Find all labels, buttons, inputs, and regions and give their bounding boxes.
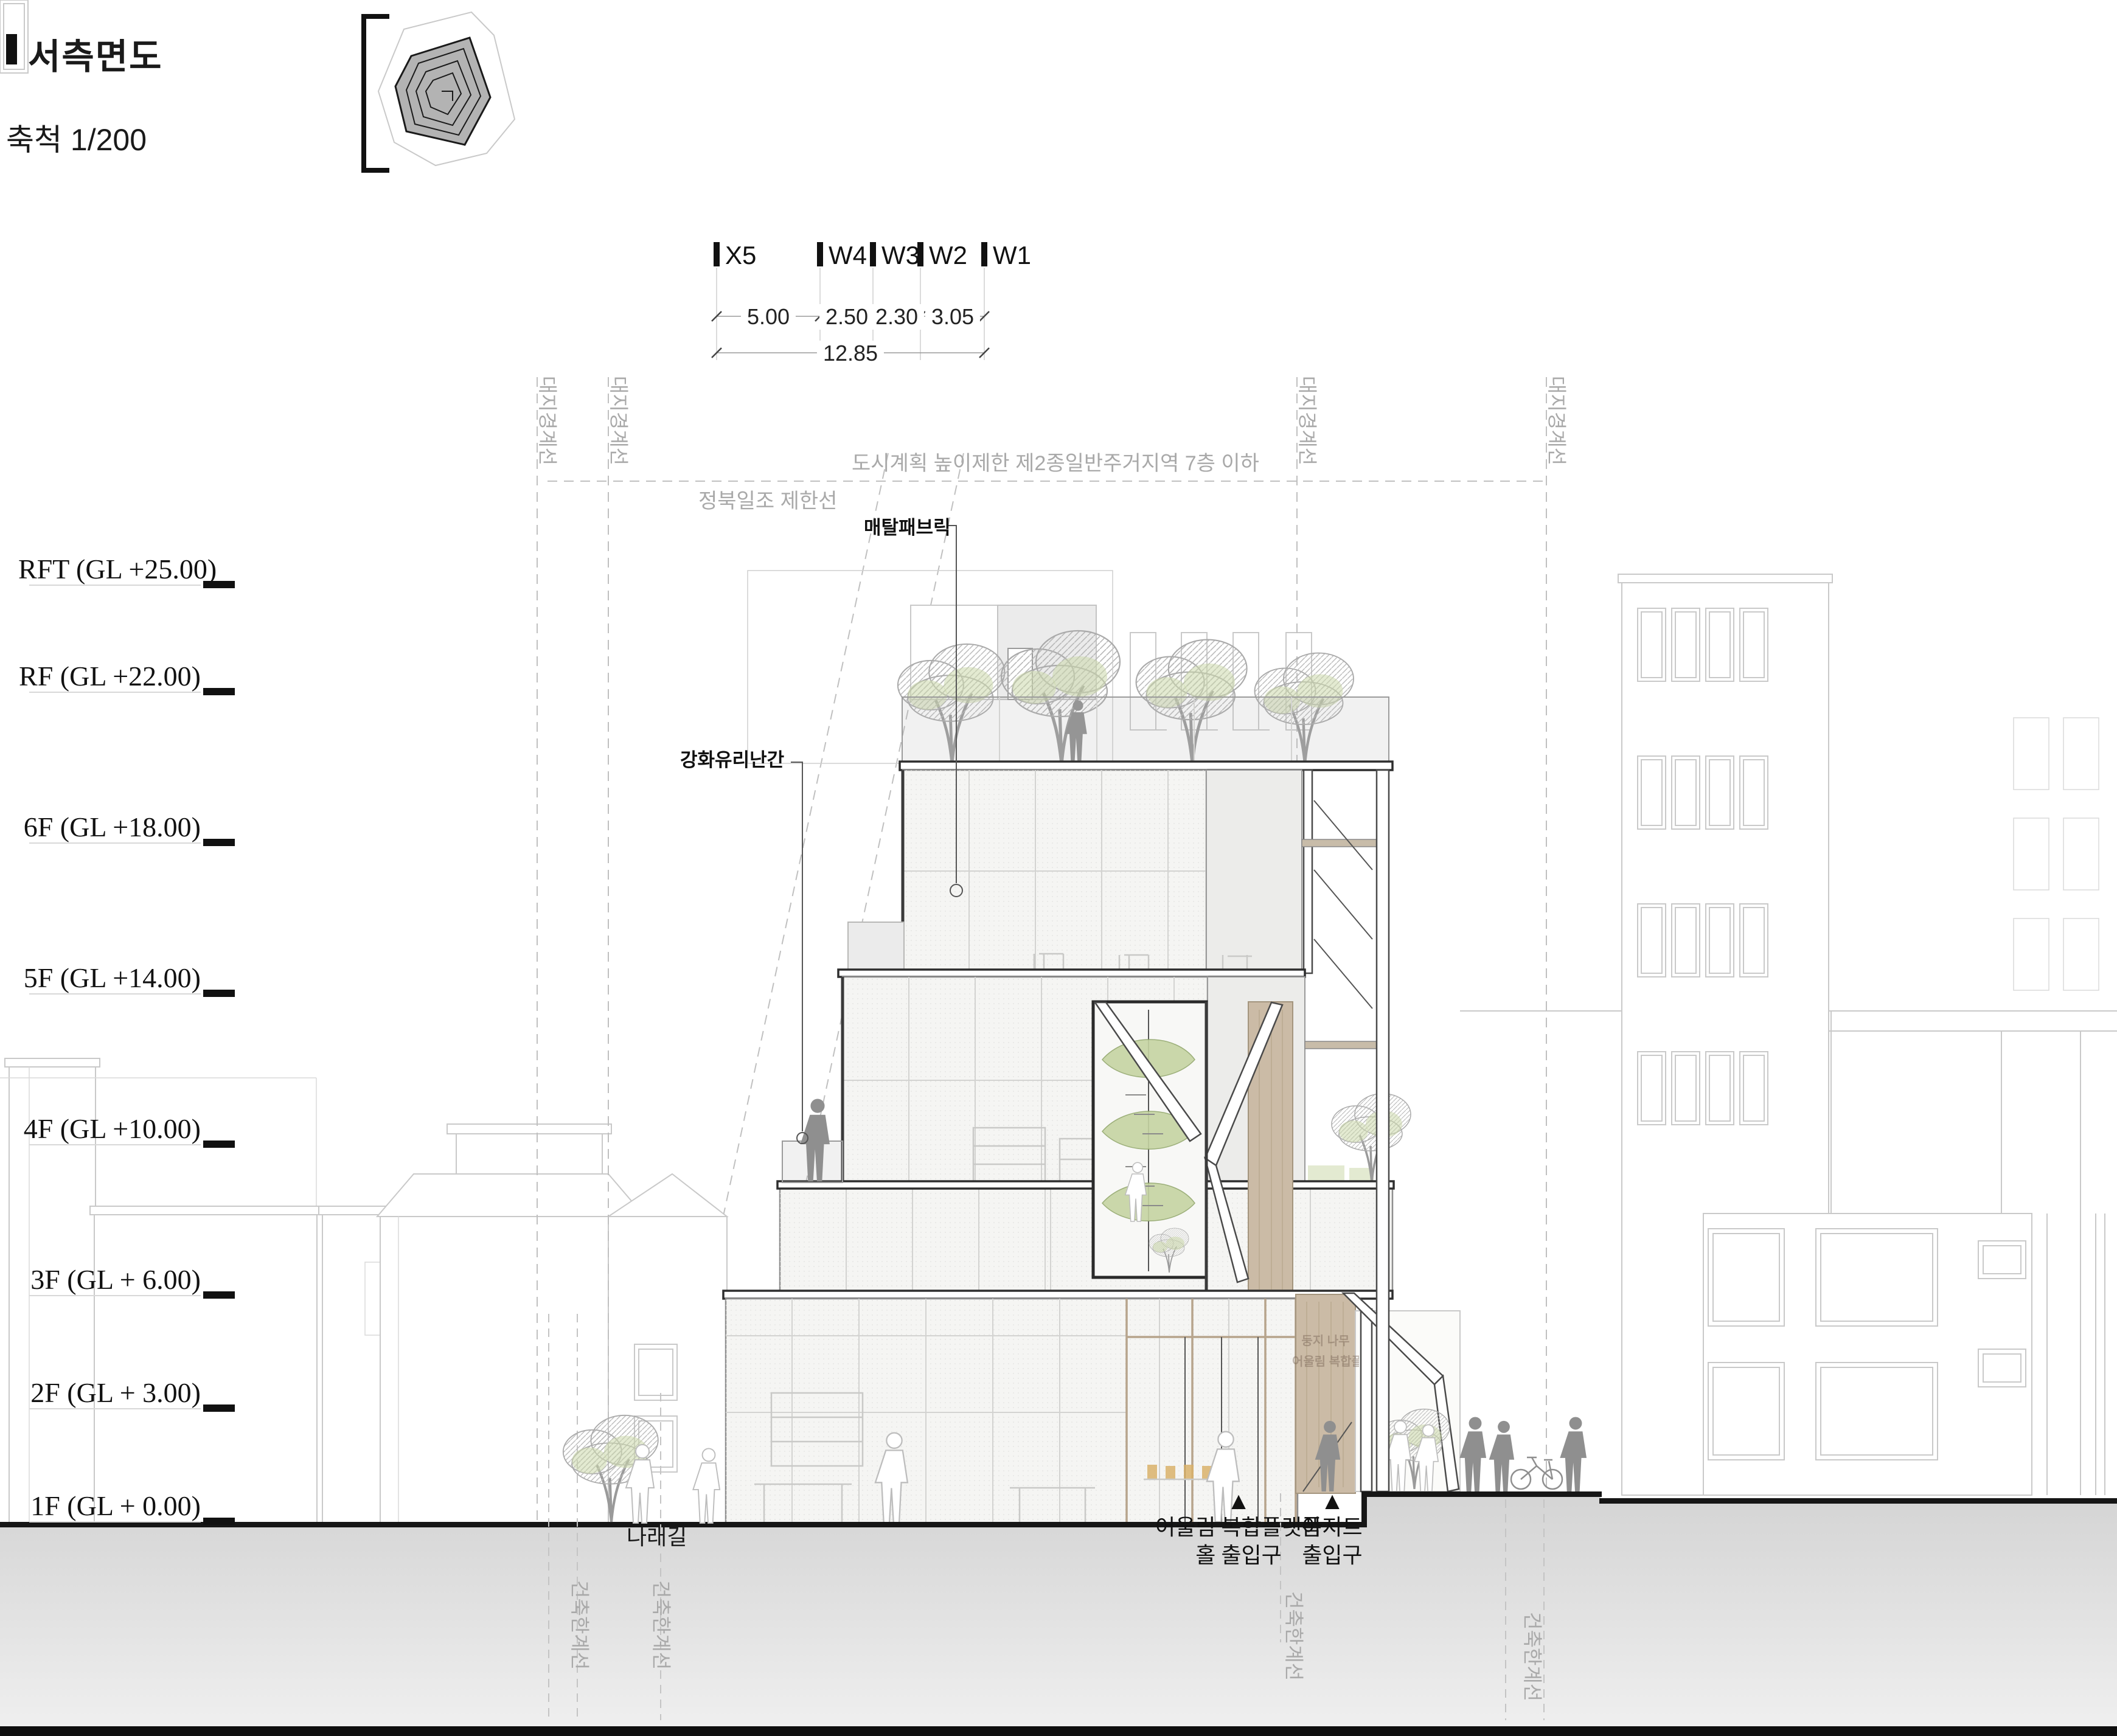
elevation-drawing — [0, 0, 2117, 1736]
dim-span-1: 5.00 — [741, 304, 796, 330]
grid-label-w1: W1 — [993, 241, 1031, 270]
level-5f: 5F (GL +14.00) — [18, 962, 201, 994]
title-bullet — [6, 34, 17, 64]
right-bay — [1343, 1293, 1460, 1491]
bicycle-icon — [1511, 1457, 1562, 1489]
entrance-marker-icon: ▲ — [1259, 1489, 1405, 1513]
dim-span-3: 2.30 — [869, 304, 924, 330]
street-name-label: 나래길 — [627, 1519, 687, 1551]
site-boundary-label-4: 대지경계선 — [1544, 376, 1572, 465]
dim-span-4: 3.05 — [925, 304, 980, 330]
dim-total: 12.85 — [817, 341, 884, 366]
level-1f: 1F (GL + 0.00) — [18, 1490, 201, 1522]
level-4f: 4F (GL +10.00) — [18, 1113, 201, 1145]
building-limit-label-1: 건축한계선 — [567, 1580, 595, 1670]
height-limit-label: 도시계획 높이제한 제2종일반주거지역 7층 이하 — [852, 446, 1259, 476]
level-rft: RFT (GL +25.00) — [18, 553, 201, 585]
site-boundary-label-2: 대지경계선 — [606, 376, 634, 465]
roof-glass-railing — [902, 697, 1389, 764]
entrance-azit: ▲ 아지트 출입구 — [1259, 1489, 1405, 1569]
level-3f: 3F (GL + 6.00) — [18, 1263, 201, 1296]
sheet-scale: 축척 1/200 — [6, 116, 147, 159]
site-boundary-label-3: 대지경계선 — [1295, 376, 1323, 465]
main-building — [723, 571, 1460, 1526]
building-limit-label-4: 건축한계선 — [1520, 1612, 1548, 1701]
building-limit-label-2: 건축한계선 — [648, 1580, 676, 1670]
sheet-title: 서측면도 — [28, 28, 162, 79]
grid-label-x5: X5 — [725, 241, 756, 270]
building-limit-label-3: 건축한계선 — [1281, 1591, 1309, 1681]
grid-label-w2: W2 — [929, 241, 967, 270]
lobby-sign: 둥지 나무 어울림 복합플랫폼 — [1292, 1331, 1359, 1372]
level-rf: RF (GL +22.00) — [18, 660, 201, 692]
level-2f: 2F (GL + 3.00) — [18, 1377, 201, 1409]
glass-railing-label: 강화유리난간 — [680, 745, 784, 772]
level-6f: 6F (GL +18.00) — [18, 811, 201, 843]
site-boundary-label-1: 대지경계선 — [535, 376, 563, 465]
grid-label-w4: W4 — [829, 241, 867, 270]
metal-fabric-label: 매탈패브릭 — [864, 512, 951, 540]
sun-setback-label: 정북일조 제한선 — [698, 484, 837, 514]
site-plan-icon — [364, 12, 515, 170]
elevation-sheet: 서측면도 축척 1/200 X5 W4 W3 W2 W1 5.00 2.50 2… — [0, 0, 2117, 1736]
dim-span-2: 2.50 — [819, 304, 874, 330]
grid-label-w3: W3 — [881, 241, 920, 270]
